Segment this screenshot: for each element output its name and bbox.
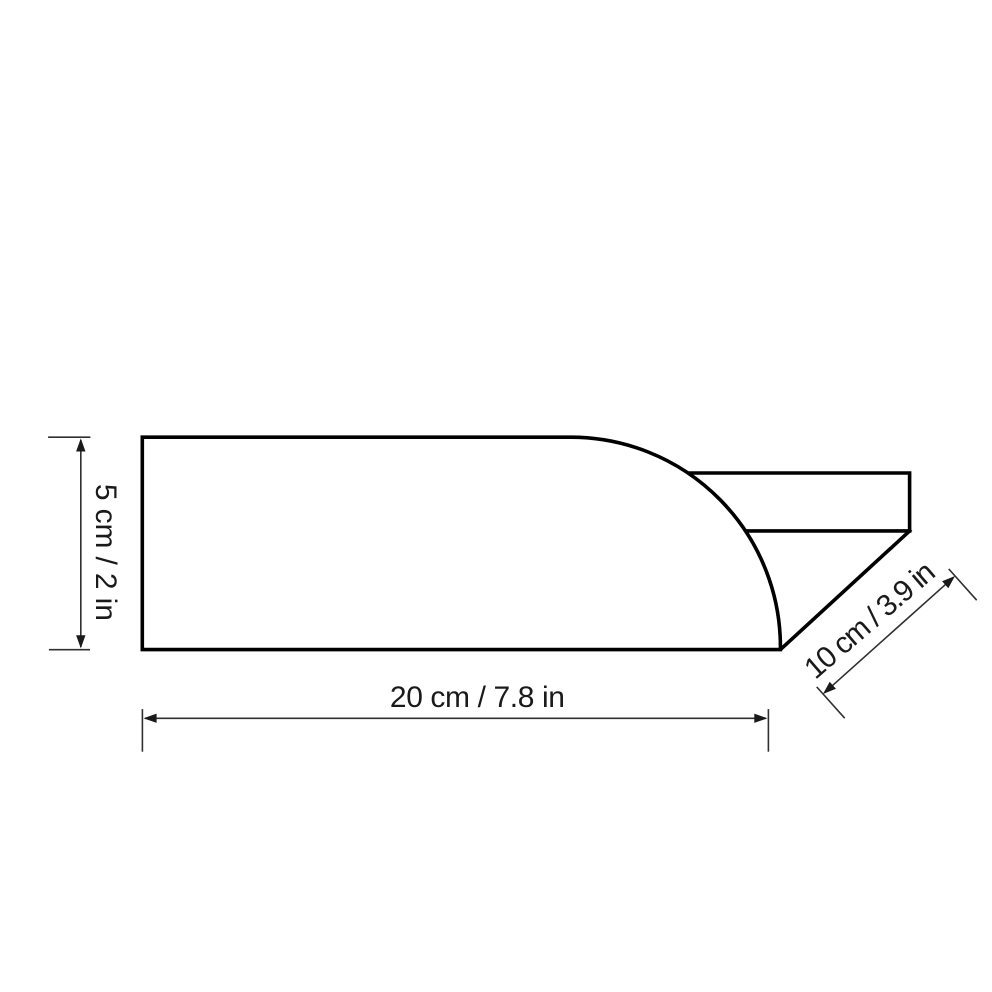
svg-text:5 cm / 2 in: 5 cm / 2 in (89, 484, 122, 621)
svg-text:20 cm / 7.8 in: 20 cm / 7.8 in (390, 681, 565, 714)
